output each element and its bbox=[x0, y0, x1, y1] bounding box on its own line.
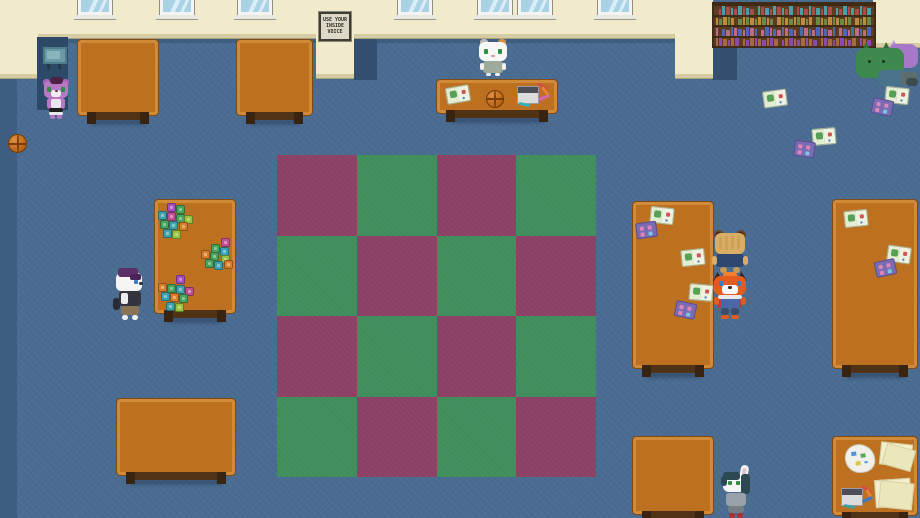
bookshelf[interactable] bbox=[712, 2, 876, 48]
book bbox=[755, 19, 757, 25]
book bbox=[746, 17, 749, 25]
book bbox=[836, 38, 839, 47]
book bbox=[833, 17, 835, 25]
window bbox=[238, 0, 272, 15]
sprite-part bbox=[121, 306, 139, 315]
book bbox=[770, 19, 773, 25]
sprite-part bbox=[741, 297, 746, 305]
table-legs bbox=[844, 512, 906, 518]
sprite-part bbox=[134, 280, 138, 284]
book bbox=[789, 38, 793, 46]
wall-left-column bbox=[0, 0, 38, 78]
book bbox=[743, 30, 745, 36]
book bbox=[867, 27, 871, 36]
book bbox=[801, 38, 805, 47]
book bbox=[746, 8, 749, 15]
picture-book[interactable] bbox=[843, 209, 869, 228]
crayon-book[interactable] bbox=[517, 83, 553, 107]
book bbox=[782, 27, 784, 36]
book bbox=[848, 30, 850, 36]
book bbox=[716, 28, 718, 36]
book bbox=[824, 29, 827, 36]
book bbox=[794, 30, 796, 36]
table-top-left-a[interactable] bbox=[78, 40, 158, 115]
book bbox=[731, 18, 734, 25]
book bbox=[762, 17, 766, 25]
sprite-part bbox=[721, 315, 729, 319]
rug-tile bbox=[357, 397, 437, 478]
book bbox=[716, 38, 718, 47]
window bbox=[478, 0, 512, 15]
book bbox=[738, 19, 742, 25]
character-white-cat[interactable] bbox=[478, 39, 508, 76]
book bbox=[773, 6, 776, 15]
book bbox=[758, 39, 761, 46]
book bbox=[750, 18, 754, 25]
rug-tile bbox=[516, 397, 596, 478]
wall-right-column bbox=[675, 0, 713, 78]
toy-block[interactable] bbox=[205, 259, 214, 268]
bookshelf-row bbox=[714, 17, 874, 28]
toy-block[interactable] bbox=[179, 294, 188, 303]
character-purple-hamster[interactable] bbox=[42, 76, 70, 120]
table-legs bbox=[248, 112, 301, 120]
book bbox=[785, 28, 788, 36]
book bbox=[762, 40, 766, 46]
sign-line: VOICE bbox=[327, 30, 342, 35]
book bbox=[746, 27, 749, 36]
book bbox=[726, 30, 730, 36]
table-legs bbox=[89, 112, 147, 120]
table-legs bbox=[644, 511, 702, 518]
book bbox=[770, 28, 772, 36]
sprite-part bbox=[737, 513, 743, 518]
bookshelf-row bbox=[714, 27, 874, 38]
crayon bbox=[539, 94, 550, 101]
book bbox=[855, 9, 859, 15]
toy-block[interactable] bbox=[175, 303, 184, 312]
toy-block[interactable] bbox=[167, 203, 176, 212]
book bbox=[723, 17, 727, 26]
sprite-part bbox=[486, 73, 491, 76]
rug-tile bbox=[357, 316, 437, 397]
book bbox=[821, 9, 823, 15]
book bbox=[731, 8, 733, 15]
picture-book[interactable] bbox=[762, 88, 788, 108]
book bbox=[789, 19, 793, 25]
book bbox=[726, 7, 730, 15]
paper-stack[interactable] bbox=[879, 441, 913, 467]
pillar-shadow bbox=[353, 38, 377, 80]
book bbox=[855, 28, 859, 36]
book bbox=[728, 40, 730, 46]
book bbox=[804, 9, 808, 15]
sprite-part bbox=[719, 236, 741, 250]
book bbox=[821, 38, 823, 47]
book bbox=[743, 7, 745, 15]
book bbox=[863, 7, 866, 15]
table-legs bbox=[644, 365, 702, 373]
book bbox=[863, 17, 866, 26]
rug-tile bbox=[277, 397, 357, 478]
toy-block[interactable] bbox=[176, 205, 185, 214]
book bbox=[777, 7, 781, 15]
sprite-part bbox=[495, 73, 500, 76]
book bbox=[809, 39, 812, 46]
bean-bag-cats[interactable] bbox=[856, 42, 920, 88]
sprite-part bbox=[51, 99, 61, 108]
book bbox=[722, 29, 725, 36]
book bbox=[789, 6, 793, 15]
rug-tile bbox=[357, 155, 437, 236]
book bbox=[794, 17, 796, 26]
book bbox=[743, 17, 745, 26]
book bbox=[719, 38, 722, 46]
book bbox=[800, 8, 803, 15]
book bbox=[774, 39, 778, 46]
book bbox=[743, 39, 745, 46]
sprite-part bbox=[731, 308, 739, 315]
rug-tile bbox=[277, 316, 357, 397]
toy-block[interactable] bbox=[163, 229, 172, 238]
toy-block[interactable] bbox=[201, 250, 210, 259]
book bbox=[767, 38, 769, 47]
sticker-card[interactable] bbox=[635, 221, 658, 240]
window-sill bbox=[474, 15, 516, 19]
basketball-on-table[interactable] bbox=[486, 90, 504, 108]
book bbox=[867, 8, 871, 15]
sprite-part bbox=[498, 49, 502, 54]
sprite-part bbox=[729, 513, 735, 518]
sprite-part bbox=[731, 315, 739, 319]
book bbox=[789, 29, 793, 36]
window-sill bbox=[74, 15, 116, 19]
sprite-part bbox=[726, 493, 746, 506]
book bbox=[785, 38, 788, 47]
window bbox=[160, 0, 194, 15]
book bbox=[843, 6, 847, 15]
window-sill bbox=[594, 15, 636, 19]
book bbox=[765, 27, 769, 36]
rug-tile bbox=[437, 397, 517, 478]
book bbox=[767, 18, 769, 25]
book bbox=[816, 27, 820, 36]
sticker-card[interactable] bbox=[793, 140, 816, 159]
rug-tile bbox=[516, 316, 596, 397]
book bbox=[782, 8, 784, 15]
window bbox=[598, 0, 632, 15]
book bbox=[734, 28, 737, 36]
sprite-part bbox=[906, 78, 918, 86]
sprite-part bbox=[139, 282, 143, 285]
toy-block[interactable] bbox=[170, 293, 179, 302]
sprite-part bbox=[721, 476, 727, 486]
rug-tile bbox=[277, 236, 357, 317]
book bbox=[809, 29, 811, 36]
book bbox=[770, 38, 773, 46]
sprite-part bbox=[50, 115, 55, 119]
toy-block[interactable] bbox=[176, 275, 185, 284]
book bbox=[833, 27, 835, 36]
book bbox=[845, 39, 847, 46]
table-legs bbox=[128, 472, 224, 480]
book bbox=[716, 18, 718, 25]
toy-block[interactable] bbox=[221, 238, 230, 247]
checkered-rug bbox=[277, 155, 596, 477]
rug-tile bbox=[516, 236, 596, 317]
book bbox=[801, 18, 805, 25]
rug-tile bbox=[516, 155, 596, 236]
book bbox=[828, 17, 832, 26]
book bbox=[860, 6, 862, 15]
crayon-book[interactable] bbox=[841, 485, 877, 509]
book bbox=[735, 38, 739, 46]
book bbox=[848, 17, 851, 25]
book bbox=[836, 8, 838, 15]
book bbox=[773, 29, 776, 36]
toy-block[interactable] bbox=[158, 283, 167, 292]
book bbox=[770, 9, 772, 15]
book bbox=[867, 17, 871, 25]
toy-block[interactable] bbox=[214, 261, 223, 270]
table-legs bbox=[844, 365, 906, 373]
book bbox=[804, 28, 808, 36]
book bbox=[777, 17, 781, 26]
book bbox=[840, 19, 844, 25]
book bbox=[765, 8, 769, 15]
sprite-part bbox=[721, 308, 729, 315]
book bbox=[836, 18, 839, 25]
book bbox=[797, 40, 800, 46]
sprite-part bbox=[716, 254, 744, 267]
book bbox=[722, 6, 725, 15]
book bbox=[797, 7, 799, 15]
book bbox=[785, 9, 788, 15]
window-sill bbox=[394, 15, 436, 19]
book bbox=[719, 19, 722, 25]
sprite-part bbox=[728, 481, 732, 485]
book bbox=[816, 8, 820, 15]
table-legs bbox=[448, 110, 546, 118]
book bbox=[833, 40, 835, 46]
toy-block[interactable] bbox=[172, 230, 181, 239]
book bbox=[860, 29, 862, 36]
book bbox=[824, 6, 827, 15]
book bbox=[782, 17, 784, 25]
sprite-part bbox=[55, 90, 58, 92]
sprite-part bbox=[484, 49, 488, 54]
book bbox=[800, 27, 803, 36]
book bbox=[797, 17, 800, 25]
sprite-part bbox=[57, 115, 62, 119]
book bbox=[758, 17, 761, 26]
book bbox=[821, 28, 823, 36]
book bbox=[734, 9, 737, 15]
sprite-part bbox=[61, 87, 65, 92]
sprite-part bbox=[868, 60, 871, 63]
book bbox=[860, 19, 862, 25]
sprite-part bbox=[121, 293, 128, 304]
character-fox[interactable] bbox=[710, 272, 750, 322]
book bbox=[821, 18, 823, 25]
window-sill bbox=[156, 15, 198, 19]
wall-corner-right bbox=[873, 0, 920, 47]
book bbox=[806, 38, 808, 46]
rug-tile bbox=[277, 155, 357, 236]
book bbox=[839, 9, 842, 15]
book bbox=[824, 38, 827, 46]
book bbox=[813, 40, 817, 46]
sprite-part bbox=[502, 63, 506, 70]
book bbox=[750, 28, 754, 36]
sprite-part bbox=[50, 77, 63, 84]
character-brown-bear[interactable] bbox=[712, 230, 748, 276]
sprite-part bbox=[728, 506, 744, 513]
sprite-part bbox=[728, 286, 732, 289]
sprite-part bbox=[741, 474, 750, 494]
book bbox=[777, 30, 781, 36]
sticker-card[interactable] bbox=[871, 97, 895, 117]
book bbox=[728, 17, 730, 25]
window-sill bbox=[234, 15, 276, 19]
window bbox=[78, 0, 112, 15]
book bbox=[855, 18, 859, 25]
sprite-part bbox=[712, 256, 717, 265]
tv-leg bbox=[47, 64, 50, 69]
book bbox=[746, 40, 749, 46]
book bbox=[843, 29, 847, 36]
rug-tile bbox=[437, 155, 517, 236]
table-bottom-left[interactable] bbox=[117, 399, 235, 475]
book bbox=[719, 9, 721, 15]
toy-block[interactable] bbox=[161, 292, 170, 301]
book bbox=[761, 7, 764, 15]
window-sill bbox=[514, 15, 556, 19]
tv-screen[interactable] bbox=[43, 47, 67, 64]
bookshelf-shadow bbox=[712, 48, 737, 80]
book bbox=[758, 6, 760, 15]
table-top-left-b[interactable] bbox=[237, 40, 312, 115]
toy-block[interactable] bbox=[158, 211, 167, 220]
toy-block[interactable] bbox=[160, 220, 169, 229]
book bbox=[824, 19, 827, 25]
sprite-part bbox=[714, 297, 719, 305]
sprite-part bbox=[483, 61, 503, 73]
paper-stack[interactable] bbox=[874, 478, 912, 508]
basketball-on-floor[interactable] bbox=[8, 134, 27, 153]
sprite-part bbox=[743, 256, 748, 265]
book bbox=[812, 7, 815, 15]
book bbox=[863, 30, 866, 36]
book bbox=[839, 28, 842, 36]
classroom-scene: USE YOUR INSIDE VOICE bbox=[0, 0, 920, 518]
book bbox=[782, 40, 784, 46]
book bbox=[723, 39, 727, 46]
character-badger[interactable] bbox=[113, 268, 147, 326]
book bbox=[851, 8, 854, 15]
book bbox=[761, 30, 764, 36]
book bbox=[755, 38, 757, 46]
sprite-part bbox=[122, 315, 128, 320]
sprite-part bbox=[736, 481, 740, 485]
bookshelf-row bbox=[714, 38, 874, 47]
inside-voice-sign: USE YOUR INSIDE VOICE bbox=[319, 12, 351, 41]
book bbox=[731, 38, 734, 47]
character-rabbit[interactable] bbox=[720, 465, 754, 518]
rug-tile bbox=[437, 236, 517, 317]
book bbox=[809, 6, 811, 15]
sprite-part bbox=[718, 295, 742, 299]
book bbox=[828, 7, 832, 15]
book bbox=[731, 27, 733, 36]
book bbox=[840, 38, 844, 46]
book bbox=[738, 29, 742, 36]
rug-tile bbox=[437, 316, 517, 397]
book bbox=[785, 18, 788, 25]
bookshelf-row bbox=[714, 6, 874, 17]
sprite-part bbox=[480, 63, 484, 70]
book bbox=[794, 39, 796, 46]
book bbox=[851, 27, 854, 36]
book bbox=[828, 30, 832, 36]
book bbox=[750, 9, 754, 15]
sprite-part bbox=[882, 60, 885, 63]
book bbox=[812, 30, 815, 36]
sprite-part bbox=[491, 55, 495, 57]
book bbox=[738, 6, 742, 15]
sprite-part bbox=[132, 315, 138, 320]
crayon bbox=[844, 504, 855, 509]
book bbox=[806, 19, 808, 25]
tv-leg bbox=[58, 64, 61, 69]
book bbox=[845, 17, 847, 26]
book bbox=[816, 17, 820, 25]
toy-block[interactable] bbox=[224, 260, 233, 269]
book bbox=[848, 7, 850, 15]
table-bottom-center[interactable] bbox=[633, 437, 713, 514]
book bbox=[755, 29, 757, 36]
book bbox=[848, 40, 851, 46]
window bbox=[518, 0, 552, 15]
picture-book[interactable] bbox=[680, 248, 706, 267]
toy-block[interactable] bbox=[166, 302, 175, 311]
sprite-part bbox=[737, 281, 741, 286]
window bbox=[398, 0, 432, 15]
book bbox=[809, 17, 812, 26]
book bbox=[750, 38, 754, 47]
book bbox=[828, 39, 832, 46]
rug-tile bbox=[357, 236, 437, 317]
